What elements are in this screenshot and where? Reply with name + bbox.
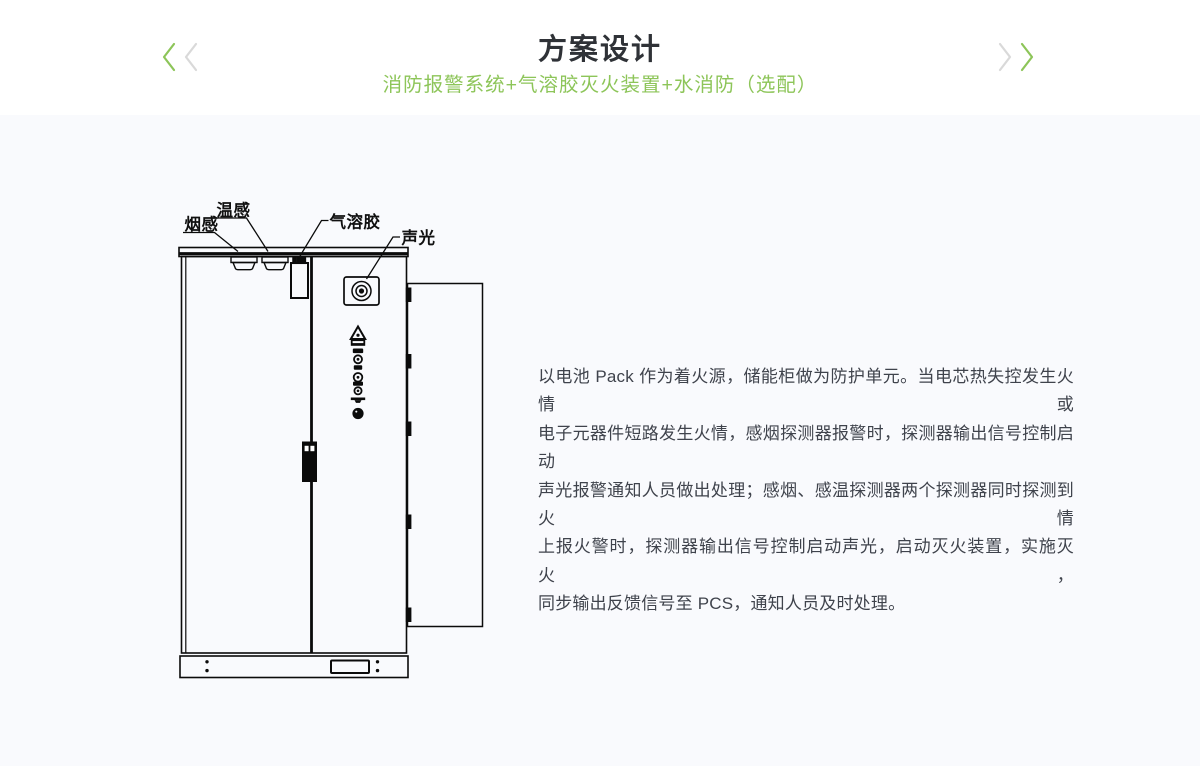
storage-cabinet-diagram: 烟感 温感 气溶胶 声光 bbox=[165, 195, 495, 690]
paragraph-line: 电子元器件短路发生火情，感烟探测器报警时，探测器输出信号控制启动 bbox=[538, 420, 1074, 477]
temperature-detector-label: 温感 bbox=[217, 200, 251, 220]
fire-suppression-column bbox=[351, 327, 365, 420]
smoke-detector bbox=[231, 257, 257, 270]
description-paragraph: 以电池 Pack 作为着火源，储能柜做为防护单元。当电芯热失控发生火情或 电子元… bbox=[538, 363, 1074, 619]
temperature-detector bbox=[262, 257, 288, 270]
slide-header: 方案设计 消防报警系统+气溶胶灭火装置+水消防（选配） bbox=[0, 0, 1200, 115]
smoke-detector-label: 烟感 bbox=[185, 214, 219, 234]
door-lock bbox=[302, 442, 317, 483]
next-chevron-green-icon[interactable] bbox=[1019, 42, 1035, 72]
paragraph-line: 同步输出反馈信号至 PCS，通知人员及时处理。 bbox=[538, 590, 1074, 618]
paragraph-line: 以电池 Pack 作为着火源，储能柜做为防护单元。当电芯热失控发生火情或 bbox=[538, 363, 1074, 420]
paragraph-line: 声光报警通知人员做出处理；感烟、感温探测器两个探测器同时探测到火情 bbox=[538, 477, 1074, 534]
aerosol-label: 气溶胶 bbox=[329, 212, 381, 232]
cabinet-body bbox=[182, 257, 407, 654]
cabinet-base bbox=[180, 656, 408, 678]
sound-light-alarm bbox=[344, 277, 379, 305]
next-chevron-gray-icon[interactable] bbox=[997, 42, 1013, 72]
paragraph-line: 上报火警时，探测器输出信号控制启动声光，启动灭火装置，实施灭火， bbox=[538, 533, 1074, 590]
content-area: 烟感 温感 气溶胶 声光 以电池 Pack 作为着火源，储能柜做为防护单元。当电… bbox=[0, 115, 1200, 766]
open-door-panel bbox=[406, 284, 483, 627]
aerosol-device bbox=[291, 258, 308, 299]
cabinet-top-bar bbox=[179, 248, 408, 257]
page-subtitle: 消防报警系统+气溶胶灭火装置+水消防（选配） bbox=[0, 68, 1200, 97]
sound-light-label: 声光 bbox=[401, 228, 436, 248]
